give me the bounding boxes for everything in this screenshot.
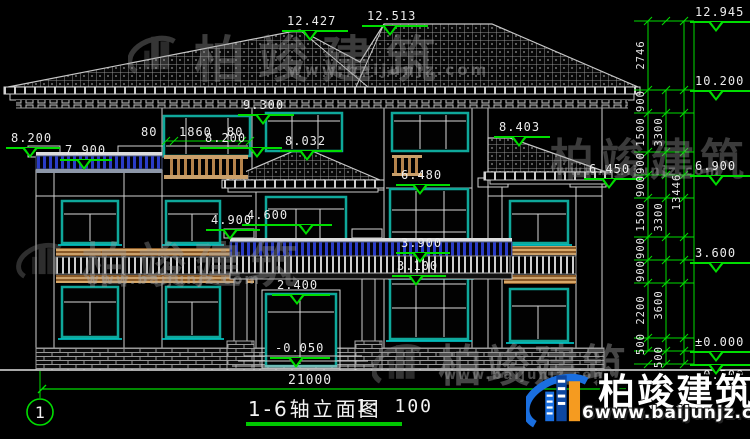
elevation-marker-8200-left: 8.200	[6, 131, 60, 161]
chain-dim-total: 13446	[671, 174, 683, 211]
chain-dim: 900	[635, 152, 647, 174]
dim-80-left: 80	[141, 125, 157, 139]
elevation-value: 3.600	[695, 246, 736, 260]
brand-logo-icon	[526, 362, 600, 436]
elevation-value: 7.900	[65, 143, 106, 157]
drawing-scale: 1: 100	[356, 396, 433, 417]
watermark-logo-icon	[16, 232, 72, 286]
watermark-logo-icon	[372, 332, 432, 392]
axis-number: 1	[35, 403, 45, 422]
chain-dim: 500	[635, 333, 647, 355]
elevation-value: 10.200	[695, 74, 744, 88]
elevation-marker-4600: 4.600	[242, 208, 332, 238]
chain-dim: 1500	[635, 202, 647, 231]
chain-dim: 900	[635, 237, 647, 259]
title-underline	[246, 422, 402, 426]
watermark-url: www.baijunjz.com	[288, 61, 489, 79]
elevation-marker-neg-0050: -0.050	[270, 341, 330, 371]
chain-dim-group: 3300	[653, 117, 665, 146]
elevation-value: ±0.000	[695, 335, 744, 349]
elevation-marker-7900: 7.900	[60, 143, 112, 173]
elevation-value: 4.600	[247, 208, 288, 222]
elevation-value: -0.050	[275, 341, 324, 355]
watermark-url: www.baijunjz.com	[86, 272, 261, 288]
elevation-value: 3.900	[401, 236, 442, 250]
elevation-value: 3.100	[397, 259, 438, 273]
footer-logo: 柏竣建筑 6www.baijunjz.com	[526, 356, 750, 439]
elevation-marker-right-eave: 10.200	[690, 74, 750, 104]
watermark-logo-icon	[128, 24, 186, 82]
elevation-value: 12.945	[695, 5, 744, 19]
brand-url: 6www.baijunjz.com	[582, 403, 750, 423]
dim-80-right: 80	[227, 125, 243, 139]
chain-dim: 900	[635, 90, 647, 112]
elevation-marker-3100: 3.100	[392, 259, 446, 289]
elevation-marker-ridge-left: 12.427	[282, 14, 348, 44]
chain-dim: 1500	[635, 117, 647, 146]
elevation-value: 9.300	[243, 98, 284, 112]
chain-dim-group: 3300	[653, 202, 665, 231]
elevation-marker-6450: 6.450	[584, 162, 642, 192]
chain-dim: 2746	[635, 40, 647, 69]
elevation-marker-6900: 6.900	[690, 159, 750, 189]
elevation-marker-ridge-right: 12.513	[362, 9, 428, 39]
total-width-dim: 21000	[288, 373, 332, 388]
elevation-value: 6.450	[589, 162, 630, 176]
elevation-value: 8.200	[11, 131, 52, 145]
elevation-marker-ridge-top: 12.945	[690, 5, 750, 35]
chain-dim: 2200	[635, 295, 647, 324]
elevation-marker-9300: 9.300	[238, 98, 294, 128]
elevation-value: 8.032	[285, 134, 326, 148]
elevation-marker-3600: 3.600	[690, 246, 750, 276]
chain-dim: 900	[635, 175, 647, 197]
elevation-value: 2.400	[277, 278, 318, 292]
elevation-marker-2400: 2.400	[272, 278, 330, 308]
elevation-value: 8.403	[499, 120, 540, 134]
elevation-value: 12.513	[367, 9, 416, 23]
elevation-marker-8403: 8.403	[494, 120, 550, 150]
dim-1860: 1860	[179, 125, 212, 139]
elevation-value: 6.900	[695, 159, 736, 173]
elevation-marker-8032: 8.032	[280, 134, 342, 164]
chain-dim: 900	[635, 260, 647, 282]
elevation-marker-6480: 6.480	[396, 168, 450, 198]
elevation-value: 12.427	[287, 14, 336, 28]
cad-elevation-drawing: 柏竣建筑 www.baijunjz.com 柏竣建筑 www.baijunjz.…	[0, 0, 750, 439]
elevation-value: 6.480	[401, 168, 442, 182]
chain-dim-group: 3600	[653, 290, 665, 319]
